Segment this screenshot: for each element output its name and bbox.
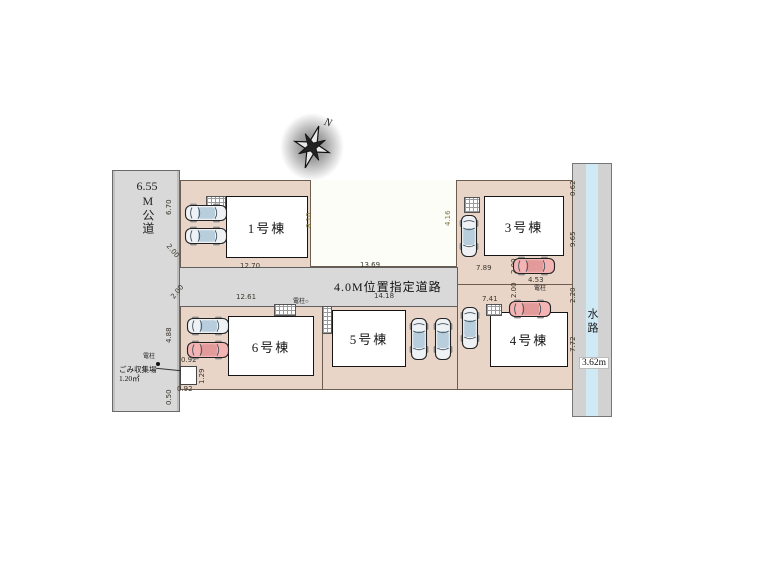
building-3: 3号棟 (484, 196, 564, 256)
building-4-label: 4号棟 (510, 330, 549, 349)
car-icon (433, 317, 453, 366)
car-icon (459, 214, 479, 263)
garbage-name: ごみ収集場 (119, 365, 157, 374)
dimension-label: 6.70 (166, 199, 173, 215)
dimension-label: 2.20 (570, 287, 577, 303)
left-road-width: 6.55 (132, 180, 162, 194)
left-road-label: 6.55 M公道 (132, 180, 162, 235)
dimension-label: 4.16 (445, 210, 452, 226)
waterway (572, 163, 612, 417)
dimension-label: 14.18 (374, 293, 394, 300)
lot-boundary (457, 307, 458, 390)
utility-pole-label: 電柱 (534, 286, 546, 292)
porch-hatch (274, 304, 296, 316)
building-1: 1号棟 (226, 196, 308, 258)
dimension-label: 7.89 (476, 265, 492, 272)
dimension-label: 0.92 (177, 386, 193, 393)
car-icon (508, 299, 552, 324)
car-icon (409, 317, 429, 366)
car-icon (512, 256, 556, 281)
dimension-label: 12.61 (236, 294, 256, 301)
building-3-label: 3号棟 (505, 217, 544, 236)
dimension-label: 4.88 (166, 327, 173, 343)
left-road-name: M公道 (140, 194, 154, 235)
car-icon (184, 203, 228, 228)
building-5: 5号棟 (332, 310, 406, 367)
dimension-label: 0.62 (570, 180, 577, 196)
building-6-label: 6号棟 (252, 337, 291, 356)
utility-pole-label: 電柱 (143, 354, 155, 360)
building-1-label: 1号棟 (248, 218, 287, 237)
empty-middle-lot (310, 180, 457, 267)
site-plan: N 6.55 M公道 水路 3.62m 4.0M位置指定道路 1号棟 3号棟 4… (0, 0, 762, 572)
garbage-collection-box (180, 366, 197, 385)
utility-pole-label: 電柱○ (293, 299, 309, 305)
car-icon (184, 226, 228, 251)
building-5-label: 5号棟 (350, 329, 389, 348)
dimension-label: 7.72 (570, 336, 577, 352)
compass-icon: N (278, 102, 350, 184)
garbage-area: 1.20㎡ (119, 374, 157, 383)
porch-hatch (486, 304, 502, 316)
building-6: 6号棟 (228, 316, 314, 376)
porch-hatch (322, 306, 332, 334)
waterway-width-label: 3.62m (579, 357, 609, 369)
dimension-label: 13.69 (360, 262, 380, 269)
waterway-stripe (586, 164, 598, 416)
dimension-label: 0.50 (166, 389, 173, 405)
lot-boundary (457, 267, 458, 307)
utility-pole-dot (156, 362, 160, 366)
dimension-label: 8.10 (306, 212, 313, 228)
car-icon (186, 340, 230, 365)
waterway-label: 水路 (584, 308, 600, 336)
dimension-label: 12.70 (240, 263, 260, 270)
dimension-label: 9.65 (570, 231, 577, 247)
car-icon (186, 316, 230, 341)
car-icon (460, 306, 480, 355)
porch-hatch (464, 197, 480, 213)
garbage-label: ごみ収集場 1.20㎡ (119, 365, 157, 384)
dimension-label: 7.41 (482, 296, 498, 303)
dimension-label: 2.00 (511, 282, 518, 298)
dimension-label: 1.29 (199, 368, 206, 384)
